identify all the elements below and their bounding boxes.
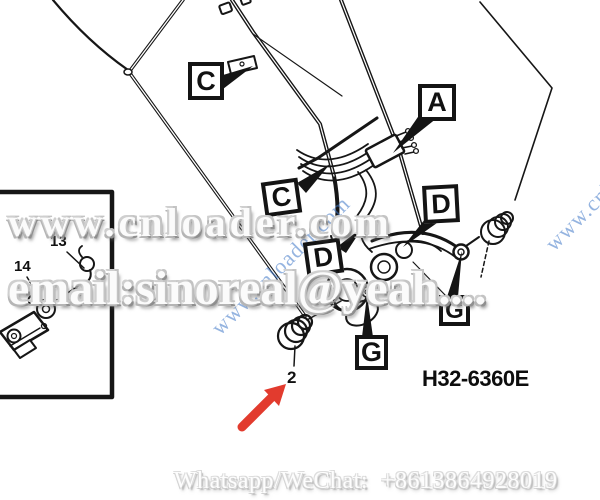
- parts-diagram-page: www.cnloader.com www.cnloader.com C A C …: [0, 0, 600, 500]
- part-number: H32-6360E: [422, 366, 529, 392]
- callout-box-g1: G: [355, 335, 388, 370]
- watermark-contact: Whatsapp/WeChat: +8613864928019: [174, 468, 558, 495]
- watermark-url: www.cnloader.com: [8, 199, 393, 246]
- callout-box-c1: C: [188, 62, 224, 100]
- callout-box-d2: D: [422, 184, 460, 224]
- watermark-email: email:sinoreal@yeah....: [8, 261, 486, 316]
- callout-box-a: A: [418, 84, 456, 121]
- item-number-2: 2: [287, 368, 296, 388]
- red-arrow-icon: [242, 384, 286, 427]
